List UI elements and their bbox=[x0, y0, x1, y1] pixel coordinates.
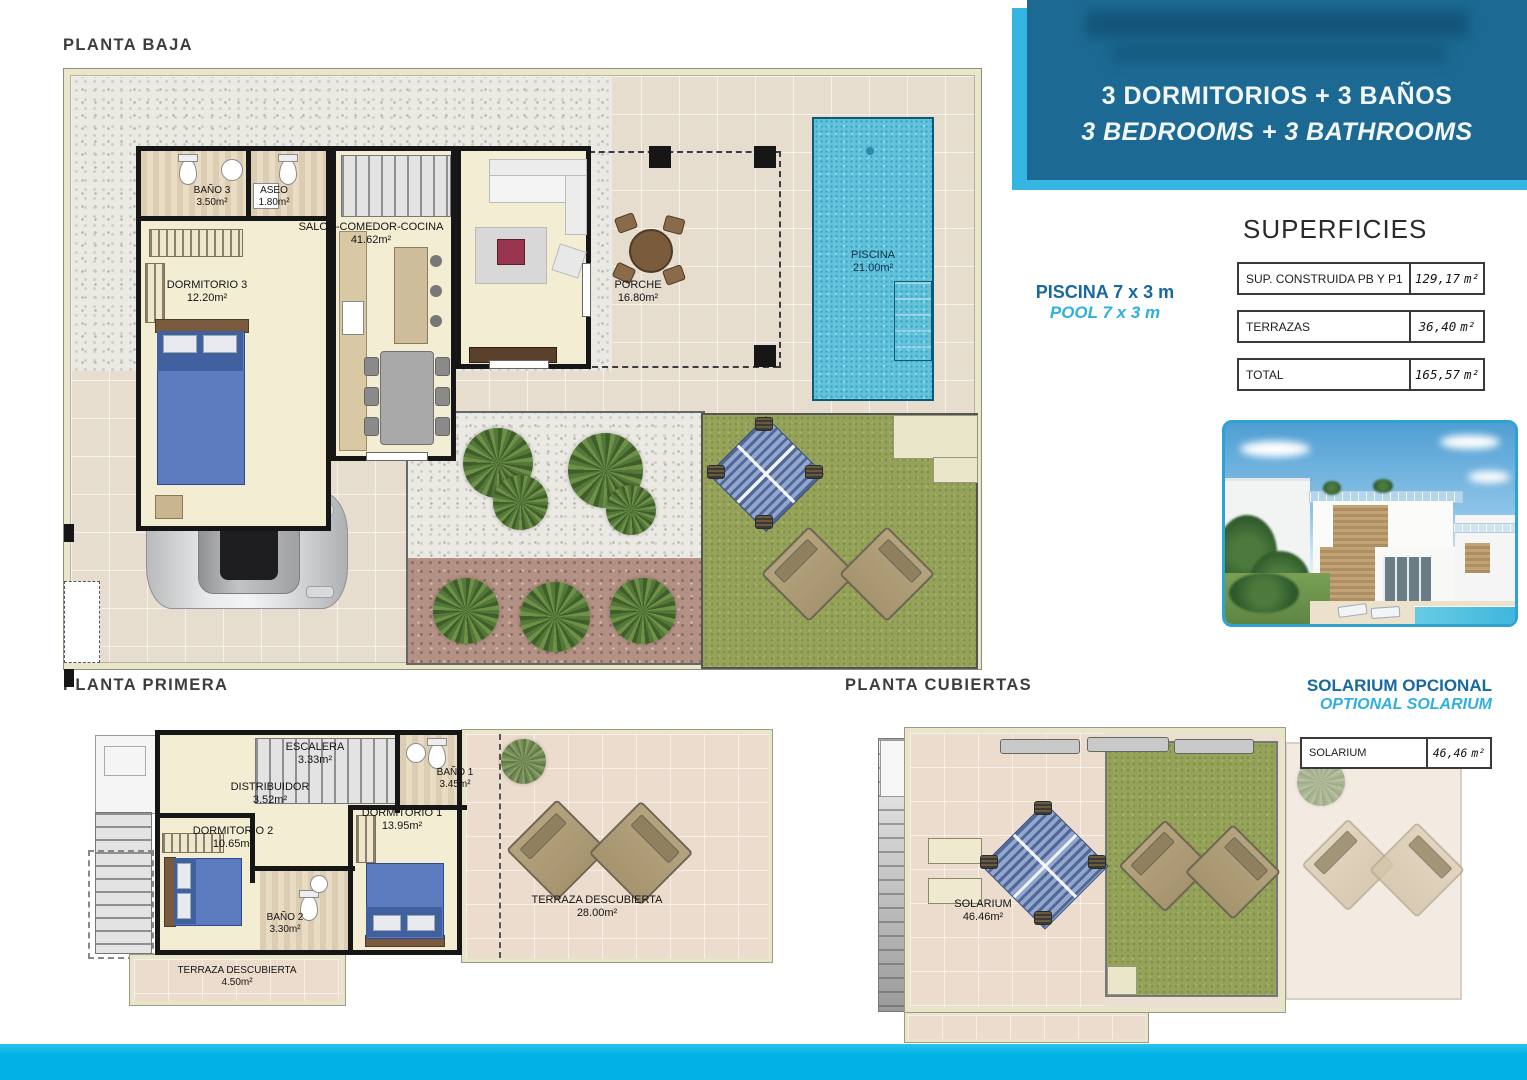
palm-icon bbox=[433, 578, 499, 644]
stool-icon bbox=[430, 285, 442, 297]
palm-icon bbox=[501, 739, 546, 784]
room-label-porche: PORCHE16.80m² bbox=[598, 279, 678, 305]
access-pad bbox=[1107, 966, 1137, 995]
planter bbox=[928, 838, 982, 864]
pool-note-spanish: PISCINA 7 x 3 m bbox=[985, 282, 1225, 303]
nightstand-icon bbox=[155, 495, 183, 519]
pool: PISCINA 21.00m² bbox=[812, 117, 934, 401]
sink-icon bbox=[221, 159, 243, 181]
garden-chair bbox=[707, 465, 725, 479]
room-label-terraza-pequena: TERRAZA DESCUBIERTA4.50m² bbox=[147, 965, 327, 989]
ground-plan-title: PLANTA BAJA bbox=[63, 36, 193, 55]
swimming-pool bbox=[1415, 606, 1515, 625]
palm-icon bbox=[606, 485, 656, 535]
brown-gravel-bed bbox=[406, 558, 705, 665]
wall bbox=[64, 524, 74, 542]
kitchen-counter bbox=[339, 231, 367, 451]
stool-icon bbox=[430, 315, 442, 327]
stone-cladding bbox=[1465, 543, 1490, 573]
kitchen-sink-icon bbox=[342, 301, 364, 335]
surfaces-row-label: TERRAZAS bbox=[1239, 320, 1409, 334]
surfaces-row-construida: SUP. CONSTRUIDA PB Y P1 129,17m² bbox=[1237, 262, 1485, 295]
door-opening bbox=[582, 263, 591, 317]
bed-double bbox=[365, 863, 443, 947]
surfaces-row-label: SUP. CONSTRUIDA PB Y P1 bbox=[1239, 272, 1409, 286]
room-label-bano1: BAÑO 13.45m² bbox=[415, 767, 495, 791]
bed-double bbox=[164, 857, 242, 925]
pool-steps bbox=[894, 281, 932, 361]
surfaces-title: SUPERFICIES bbox=[1243, 214, 1427, 245]
stone-cladding bbox=[1333, 505, 1388, 547]
headline-banner: 3 DORMITORIOS + 3 BAÑOS 3 BEDROOMS + 3 B… bbox=[1027, 0, 1527, 180]
room-label-dormitorio3: DORMITORIO 312.20m² bbox=[147, 279, 267, 305]
chair-icon bbox=[435, 417, 450, 436]
room-label-distribuidor: DISTRIBUIDOR3.52m² bbox=[210, 781, 330, 807]
garden-chair bbox=[1088, 855, 1106, 869]
kitchen-island bbox=[394, 247, 428, 344]
blurred-logo-watermark bbox=[1111, 44, 1447, 64]
porch-outline bbox=[589, 151, 781, 368]
wardrobe-icon bbox=[149, 229, 243, 257]
cloud bbox=[1240, 441, 1310, 457]
sun-lounger bbox=[1371, 606, 1401, 619]
banner-line-english: 3 BEDROOMS + 3 BATHROOMS bbox=[1027, 118, 1527, 147]
sink-icon bbox=[310, 875, 328, 893]
bed-double bbox=[155, 319, 247, 489]
solarium-table: SOLARIUM 46,46m² bbox=[1300, 737, 1492, 769]
dining-table bbox=[380, 351, 434, 445]
surfaces-row-terrazas: TERRAZAS 36,40m² bbox=[1237, 310, 1485, 343]
entry-gate bbox=[64, 581, 100, 663]
sun-lounger bbox=[1185, 824, 1281, 920]
pool-size-note: PISCINA 7 x 3 m POOL 7 x 3 m bbox=[985, 282, 1225, 323]
brochure-page: PLANTA BAJA PLANTA PRIMERA PLANTA CUBIER… bbox=[0, 0, 1527, 1080]
terrace-28 bbox=[462, 730, 772, 962]
garden-chair bbox=[805, 465, 823, 479]
villa-photo bbox=[1222, 420, 1518, 627]
surfaces-row-value: 36,40 bbox=[1419, 319, 1457, 334]
unit-m2: m² bbox=[1460, 319, 1475, 334]
toilet-icon bbox=[279, 159, 297, 185]
sun-lounger bbox=[589, 801, 694, 906]
roof-apron-terrace bbox=[905, 1012, 1148, 1042]
chair-icon bbox=[435, 357, 450, 376]
room-label-dormitorio2: DORMITORIO 210.65m² bbox=[173, 825, 293, 851]
first-floor-plan: ESCALERA3.33m² DISTRIBUIDOR3.52m² BAÑO 1… bbox=[85, 715, 780, 1020]
solarium: SOLARIUM46.46m² bbox=[905, 728, 1285, 1012]
solarium-lawn bbox=[1105, 741, 1278, 997]
solarium-note-spanish: SOLARIUM OPCIONAL bbox=[1240, 676, 1492, 696]
blurred-logo-watermark bbox=[1085, 10, 1469, 38]
porch-table bbox=[629, 229, 673, 273]
wall bbox=[395, 735, 400, 813]
roof-plant bbox=[1323, 481, 1341, 495]
window bbox=[489, 360, 549, 369]
house-block-living bbox=[456, 146, 591, 369]
chair-icon bbox=[435, 387, 450, 406]
room-label-aseo: ASEO1.80m² bbox=[246, 185, 302, 209]
bushes bbox=[1229, 573, 1299, 613]
room-label-bano2: BAÑO 23.30m² bbox=[245, 912, 325, 936]
room-label-terraza-grande: TERRAZA DESCUBIERTA28.00m² bbox=[517, 894, 677, 920]
outdoor-shower-pad bbox=[933, 457, 978, 483]
chair-icon bbox=[364, 357, 379, 376]
window bbox=[366, 452, 428, 461]
garden-chair bbox=[755, 515, 773, 529]
unit-m2: m² bbox=[1464, 271, 1479, 286]
dashed-projection bbox=[88, 850, 154, 959]
coffee-table bbox=[497, 239, 525, 265]
garden-chair bbox=[980, 855, 998, 869]
surfaces-row-value: 165,57 bbox=[1415, 367, 1460, 382]
chair-icon bbox=[364, 387, 379, 406]
stool-icon bbox=[430, 255, 442, 267]
banner-line-spanish: 3 DORMITORIOS + 3 BAÑOS bbox=[1027, 82, 1527, 111]
surfaces-row-value: 129,17 bbox=[1415, 271, 1460, 286]
lower-terrace-ghost bbox=[1285, 742, 1462, 1000]
room-label-bano3: BAÑO 33.50m² bbox=[177, 185, 247, 209]
pergola-beam bbox=[1000, 739, 1080, 754]
toilet-icon bbox=[179, 159, 197, 185]
garden-chair bbox=[1034, 801, 1052, 815]
palm-icon bbox=[520, 582, 590, 652]
porch-pillar bbox=[754, 345, 776, 367]
glass-doors bbox=[1383, 557, 1431, 605]
porch-pillar bbox=[754, 146, 776, 168]
staircase-icon bbox=[341, 155, 451, 217]
sun-lounger bbox=[839, 526, 935, 622]
unit-m2: m² bbox=[1464, 367, 1479, 382]
surfaces-row-total: TOTAL 165,57m² bbox=[1237, 358, 1485, 391]
room-label-salon: SALON-COMEDOR-COCINA41.62m² bbox=[291, 221, 451, 247]
solarium-table-label: SOLARIUM bbox=[1302, 747, 1426, 759]
pergola-beam bbox=[1174, 739, 1254, 754]
room-label-dormitorio1: DORMITORIO 113.95m² bbox=[342, 807, 462, 833]
sink-icon bbox=[406, 743, 426, 763]
surfaces-row-label: TOTAL bbox=[1239, 368, 1409, 382]
glass-balustrade bbox=[1453, 523, 1517, 533]
lawn bbox=[701, 413, 978, 669]
solarium-note-english: OPTIONAL SOLARIUM bbox=[1240, 696, 1492, 714]
pool-note-english: POOL 7 x 3 m bbox=[985, 303, 1225, 323]
ground-floor-plan: PISCINA 21.00m² bbox=[63, 68, 982, 670]
sun-lounger bbox=[1369, 822, 1465, 918]
sofa-chaise bbox=[565, 175, 587, 235]
room-label-solarium: SOLARIUM46.46m² bbox=[928, 898, 1038, 924]
porch-pillar bbox=[649, 146, 671, 168]
outdoor-shower-pad bbox=[893, 415, 978, 459]
cloud bbox=[1440, 435, 1500, 449]
footer-accent-bar bbox=[0, 1044, 1527, 1080]
roof-plan-title: PLANTA CUBIERTAS bbox=[845, 676, 1032, 695]
wall bbox=[160, 813, 255, 818]
first-plan-title: PLANTA PRIMERA bbox=[63, 676, 228, 695]
wall bbox=[64, 669, 74, 687]
room-label-escalera: ESCALERA3.33m² bbox=[265, 741, 365, 767]
garden-chair bbox=[755, 417, 773, 431]
solarium-note: SOLARIUM OPCIONAL OPTIONAL SOLARIUM bbox=[1240, 676, 1492, 714]
room-label-piscina: PISCINA 21.00m² bbox=[814, 249, 932, 275]
palm-icon bbox=[493, 475, 548, 530]
unit-m2: m² bbox=[1471, 746, 1485, 760]
palm-icon bbox=[610, 578, 676, 644]
house-block-kitchen bbox=[331, 146, 456, 461]
roof-plant bbox=[1373, 479, 1393, 493]
chair-icon bbox=[364, 417, 379, 436]
solarium-table-value: 46,46 bbox=[1433, 746, 1468, 760]
toilet-icon bbox=[428, 743, 446, 769]
cloud bbox=[1468, 471, 1510, 483]
pergola-beam bbox=[1087, 737, 1169, 752]
pool-drain bbox=[866, 147, 874, 155]
